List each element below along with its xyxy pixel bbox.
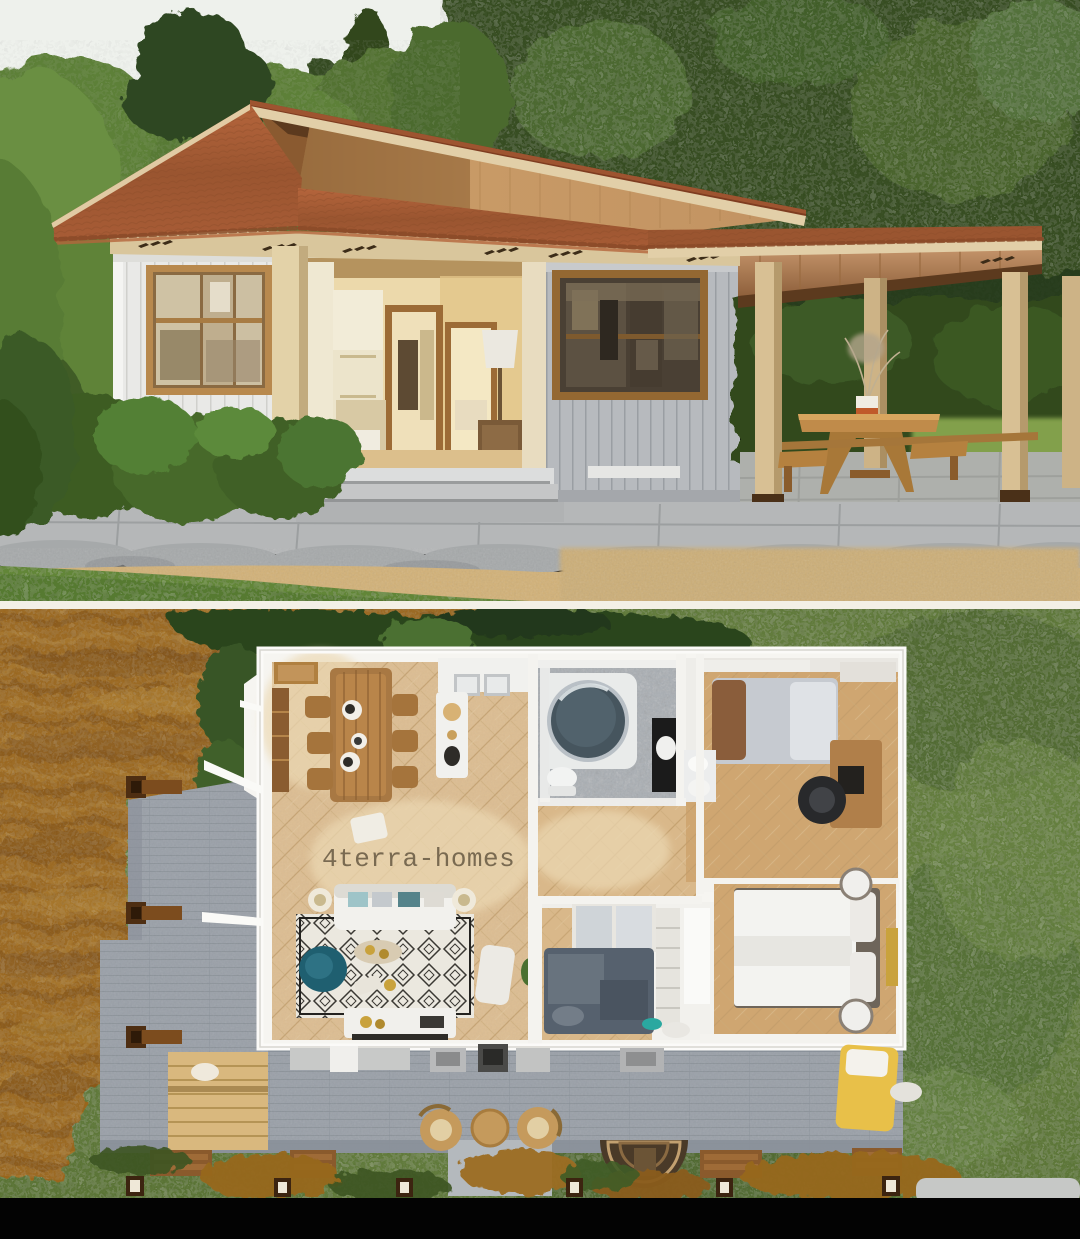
svg-text:4terra-homes: 4terra-homes <box>322 844 515 874</box>
